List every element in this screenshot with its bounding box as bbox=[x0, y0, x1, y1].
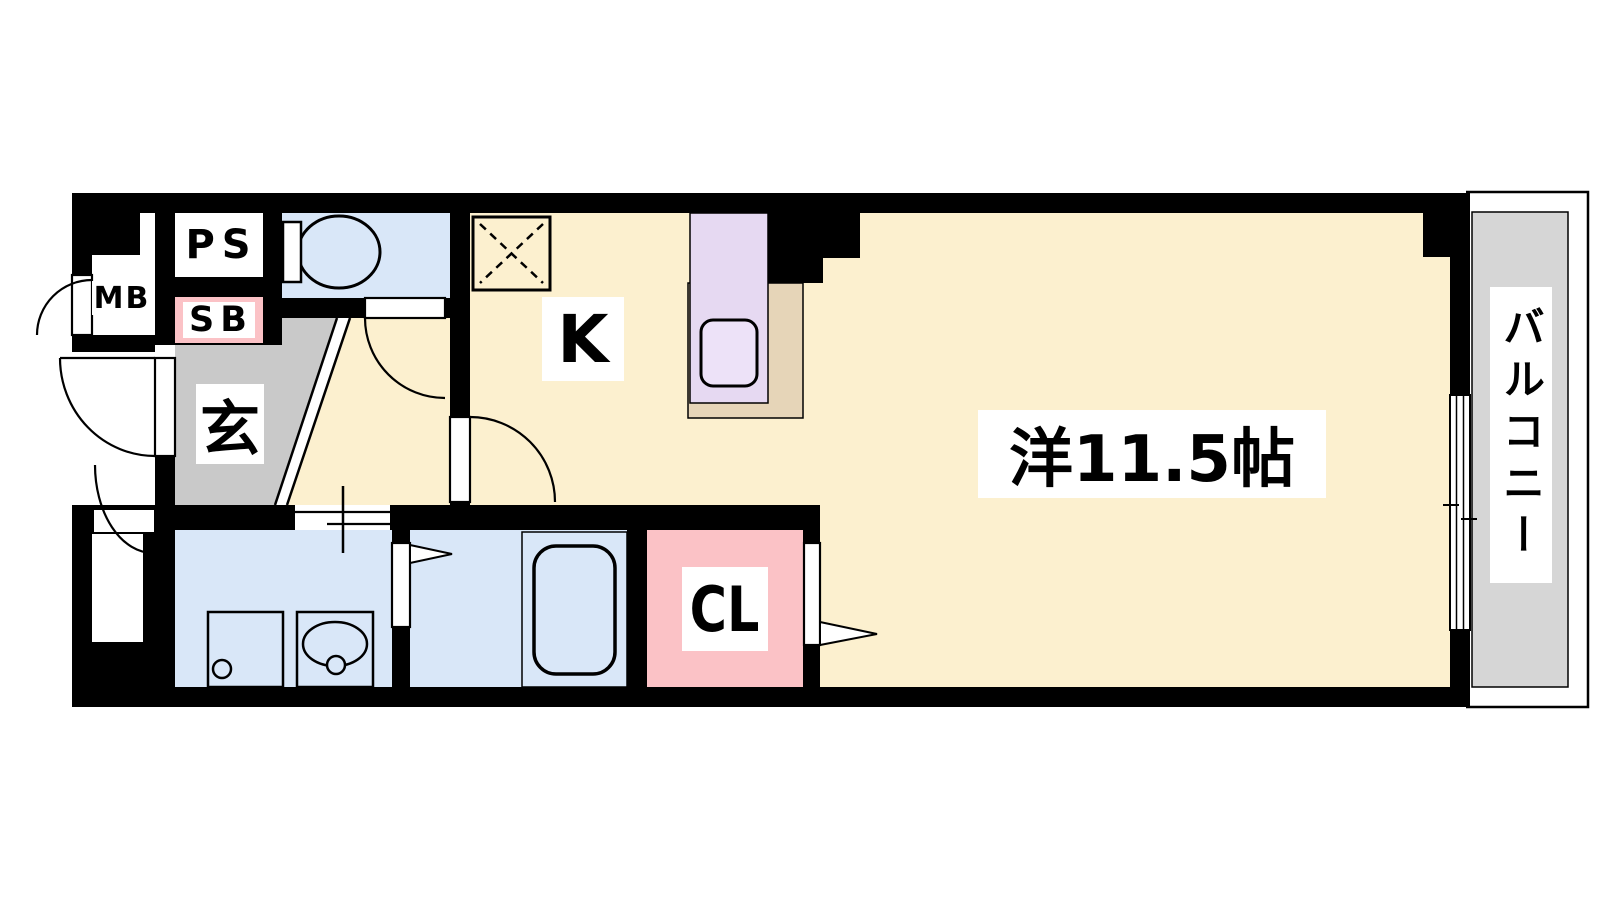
door-sill bbox=[93, 509, 155, 533]
balcony-label: バルコニー bbox=[1490, 287, 1552, 583]
wall-bottom bbox=[72, 687, 1470, 707]
floorplan-canvas: MB PS SB 玄 K 洋11.5帖 CL バルコニー bbox=[0, 0, 1600, 900]
wall-kitchen-bump bbox=[768, 213, 860, 258]
pipe-space-label: PS bbox=[175, 215, 263, 275]
bathroom-door bbox=[392, 543, 410, 627]
entrance-door-swing-arc bbox=[60, 358, 155, 456]
kitchen-sink-icon bbox=[701, 320, 757, 386]
meter-box-label: MB bbox=[92, 281, 152, 315]
main-room-label: 洋11.5帖 bbox=[978, 410, 1326, 498]
meter-box-door bbox=[72, 275, 92, 335]
closet-label: CL bbox=[682, 567, 768, 651]
toilet-door bbox=[365, 298, 445, 318]
entrance-door bbox=[155, 358, 175, 456]
wall-left-lower bbox=[72, 530, 92, 707]
kitchen-label: K bbox=[542, 297, 624, 381]
wall-right-upper bbox=[1450, 257, 1470, 395]
shoe-box-label: SB bbox=[183, 302, 255, 338]
wall-right-lower bbox=[1450, 630, 1470, 687]
wall-hall-kitchen bbox=[450, 193, 470, 417]
wall-top-right-bump bbox=[1423, 213, 1470, 257]
washbasin-tap-icon bbox=[327, 656, 345, 674]
wall-niche-block bbox=[92, 642, 143, 687]
closet-label-text: CL bbox=[690, 573, 760, 646]
toilet-tank-icon bbox=[283, 222, 301, 282]
entrance-label: 玄 bbox=[196, 384, 264, 464]
wall-notch bbox=[140, 213, 155, 262]
wall-kitchen-bump-step bbox=[768, 258, 823, 283]
wall-below-entry-door bbox=[155, 456, 175, 505]
kitchen-door bbox=[450, 417, 470, 502]
wall-wet-row-top bbox=[390, 505, 820, 530]
closet-door bbox=[804, 543, 820, 645]
wall-left bbox=[72, 262, 92, 275]
sliding-window bbox=[1450, 395, 1470, 630]
wall-bath-closet bbox=[627, 530, 647, 687]
wall-below-mb bbox=[72, 335, 155, 352]
